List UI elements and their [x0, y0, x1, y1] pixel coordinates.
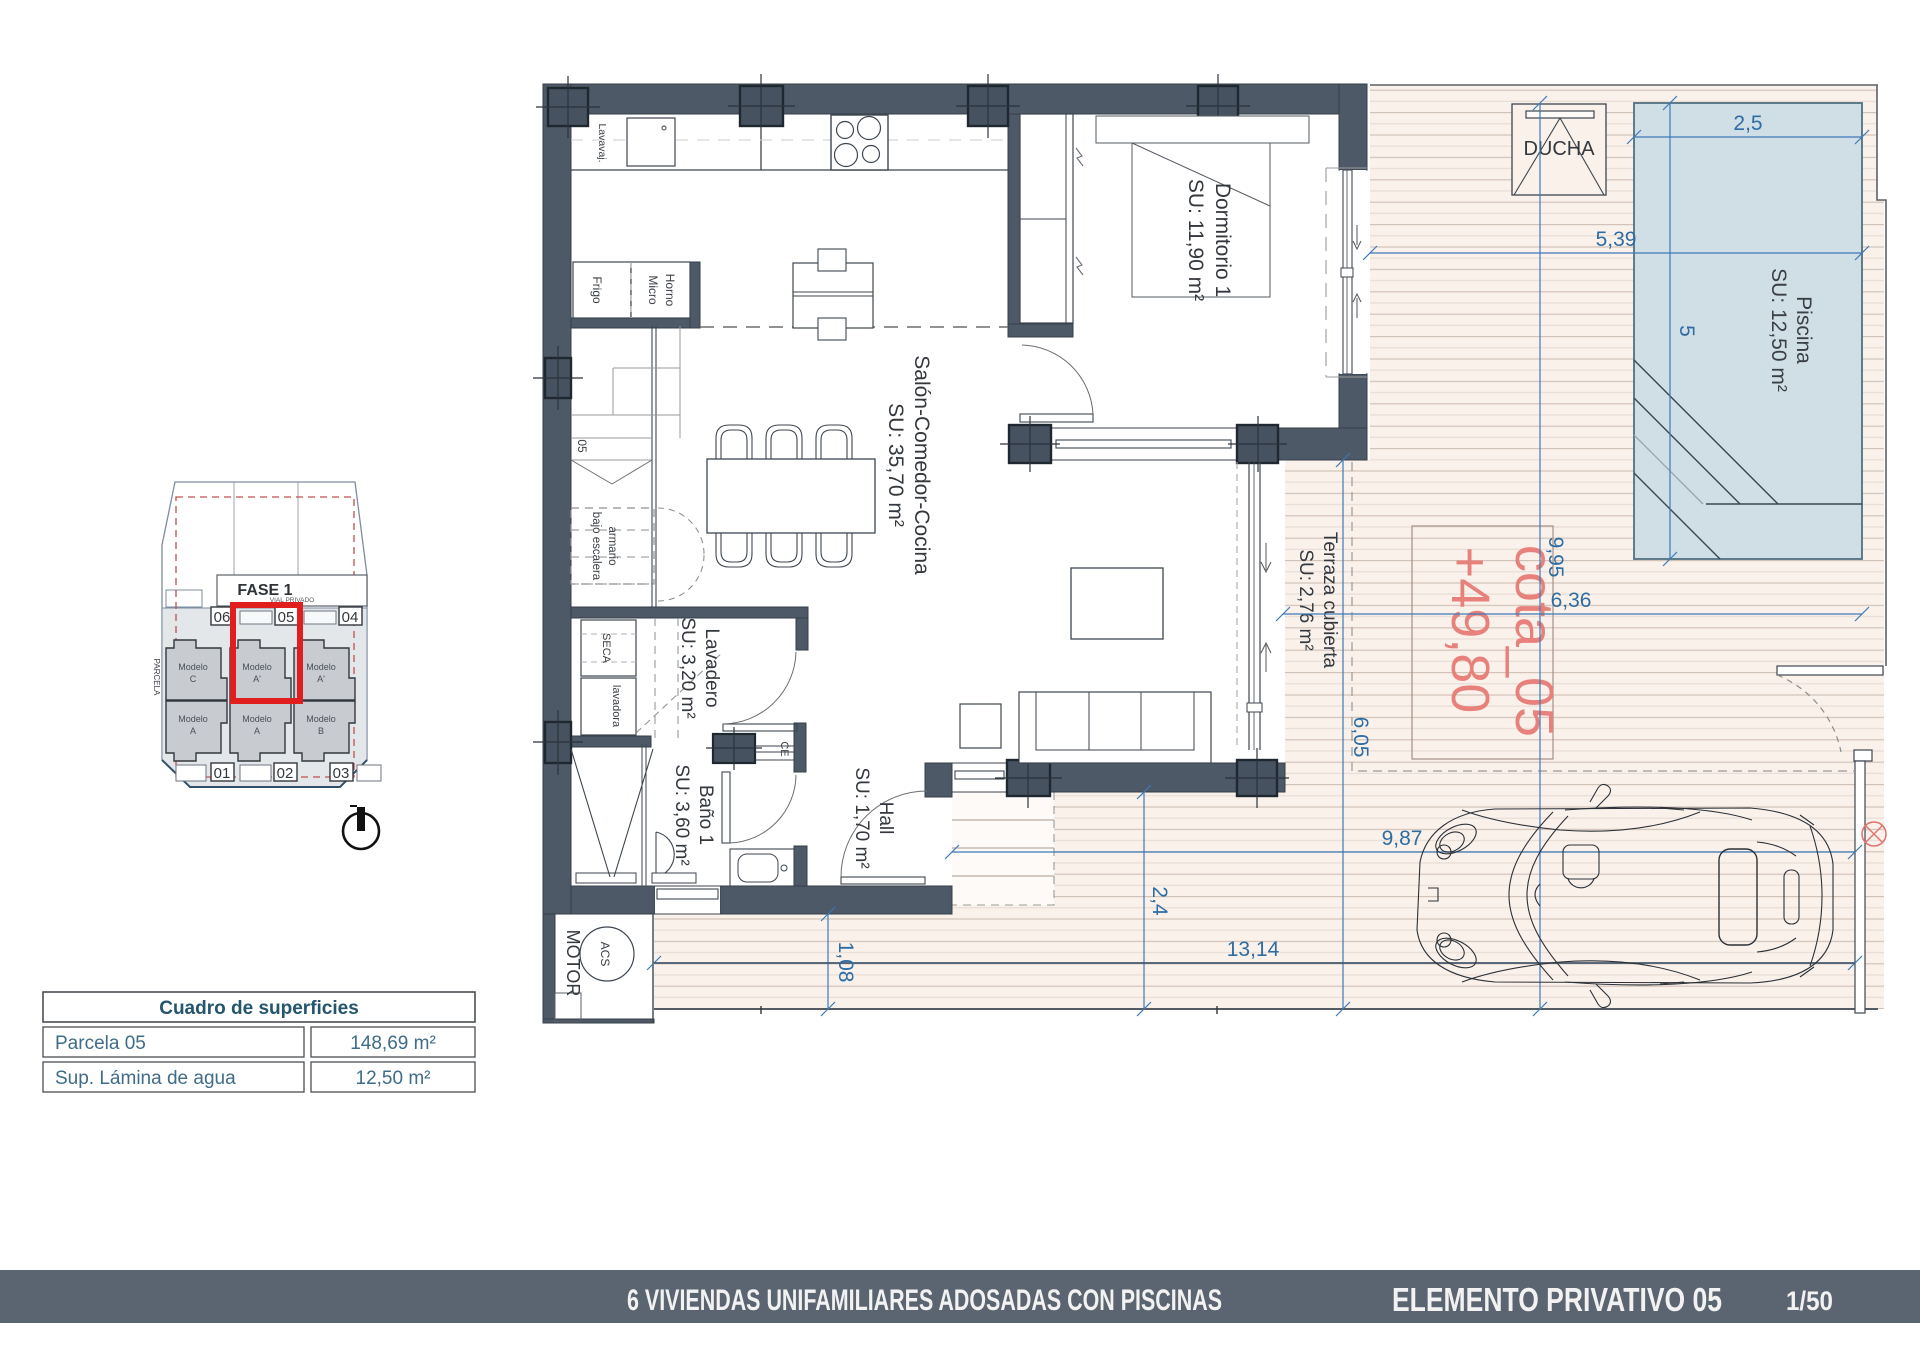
- svg-text:SU: 11,90 m²: SU: 11,90 m²: [1184, 179, 1207, 301]
- svg-text:Horno: Horno: [663, 274, 677, 307]
- svg-text:05: 05: [575, 439, 589, 453]
- svg-text:A': A': [253, 674, 261, 684]
- svg-text:SU: 12,50 m²: SU: 12,50 m²: [1767, 268, 1790, 392]
- svg-text:ACS: ACS: [598, 942, 612, 967]
- svg-text:B: B: [318, 726, 324, 736]
- svg-text:Micro: Micro: [646, 275, 660, 305]
- svg-text:6,36: 6,36: [1551, 589, 1592, 612]
- svg-text:bajo escalera: bajo escalera: [590, 512, 602, 581]
- svg-text:05: 05: [278, 609, 295, 626]
- svg-text:Sup. Lámina de agua: Sup. Lámina de agua: [55, 1068, 236, 1089]
- svg-text:04: 04: [342, 609, 359, 626]
- svg-text:DUCHA: DUCHA: [1523, 138, 1595, 160]
- svg-text:03: 03: [333, 765, 350, 782]
- svg-text:12,50 m²: 12,50 m²: [356, 1068, 431, 1089]
- svg-text:Lavavaj.: Lavavaj.: [596, 123, 608, 162]
- svg-text:5,39: 5,39: [1596, 228, 1637, 251]
- svg-text:SU: 3,20 m²: SU: 3,20 m²: [677, 617, 698, 718]
- svg-text:Modelo: Modelo: [306, 714, 336, 724]
- svg-text:A': A': [317, 674, 325, 684]
- svg-text:2,4: 2,4: [1148, 886, 1171, 916]
- svg-text:ELEMENTO PRIVATIVO 05: ELEMENTO PRIVATIVO 05: [1392, 1281, 1722, 1318]
- svg-text:02: 02: [277, 765, 294, 782]
- svg-text:CE: CE: [778, 741, 790, 756]
- svg-text:Frigo: Frigo: [590, 276, 604, 304]
- svg-text:1/50: 1/50: [1786, 1286, 1833, 1316]
- svg-text:Modelo: Modelo: [242, 662, 272, 672]
- svg-text:Hall: Hall: [875, 802, 896, 835]
- svg-text:A: A: [190, 726, 196, 736]
- svg-text:Baño 1: Baño 1: [695, 785, 716, 845]
- svg-text:6,05: 6,05: [1349, 717, 1372, 758]
- svg-text:Modelo: Modelo: [306, 662, 336, 672]
- svg-text:9,95: 9,95: [1544, 537, 1567, 578]
- svg-text:A: A: [254, 726, 260, 736]
- svg-text:Dormitorio 1: Dormitorio 1: [1211, 183, 1234, 297]
- svg-text:6 VIVIENDAS UNIFAMILIARES ADOS: 6 VIVIENDAS UNIFAMILIARES ADOSADAS CON P…: [627, 1284, 1222, 1317]
- svg-text:Modelo: Modelo: [242, 714, 272, 724]
- svg-text:2,5: 2,5: [1733, 112, 1762, 135]
- svg-text:MOTOR: MOTOR: [563, 930, 583, 997]
- svg-text:SU: 35,70 m²: SU: 35,70 m²: [884, 403, 907, 527]
- svg-text:Modelo: Modelo: [178, 714, 208, 724]
- svg-text:13,14: 13,14: [1227, 938, 1280, 961]
- svg-text:148,69 m²: 148,69 m²: [350, 1033, 436, 1054]
- svg-text:SU: 2,76 m²: SU: 2,76 m²: [1295, 549, 1316, 650]
- svg-text:Modelo: Modelo: [178, 662, 208, 672]
- svg-text:1,08: 1,08: [834, 942, 857, 983]
- svg-text:Lavadero: Lavadero: [701, 628, 722, 707]
- svg-text:Cuadro de superficies: Cuadro de superficies: [159, 998, 359, 1019]
- svg-text:+49,80: +49,80: [1440, 547, 1500, 714]
- svg-text:SU: 1,70 m²: SU: 1,70 m²: [851, 767, 872, 868]
- svg-text:Piscina: Piscina: [1792, 296, 1815, 364]
- svg-text:Terraza cubierta: Terraza cubierta: [1319, 532, 1340, 669]
- svg-text:06: 06: [214, 609, 231, 626]
- svg-text:armario: armario: [606, 527, 618, 566]
- svg-text:C: C: [190, 674, 197, 684]
- svg-text:9,87: 9,87: [1382, 827, 1423, 850]
- svg-text:5: 5: [1675, 325, 1698, 337]
- svg-text:lavadora: lavadora: [610, 685, 622, 728]
- svg-text:PARCELA: PARCELA: [152, 659, 161, 696]
- svg-text:Parcela 05: Parcela 05: [55, 1033, 146, 1054]
- svg-text:SECA: SECA: [600, 633, 612, 664]
- svg-text:Salón-Comedor-Cocina: Salón-Comedor-Cocina: [910, 355, 933, 575]
- svg-text:SU: 3,60 m²: SU: 3,60 m²: [671, 764, 692, 865]
- svg-text:01: 01: [214, 765, 231, 782]
